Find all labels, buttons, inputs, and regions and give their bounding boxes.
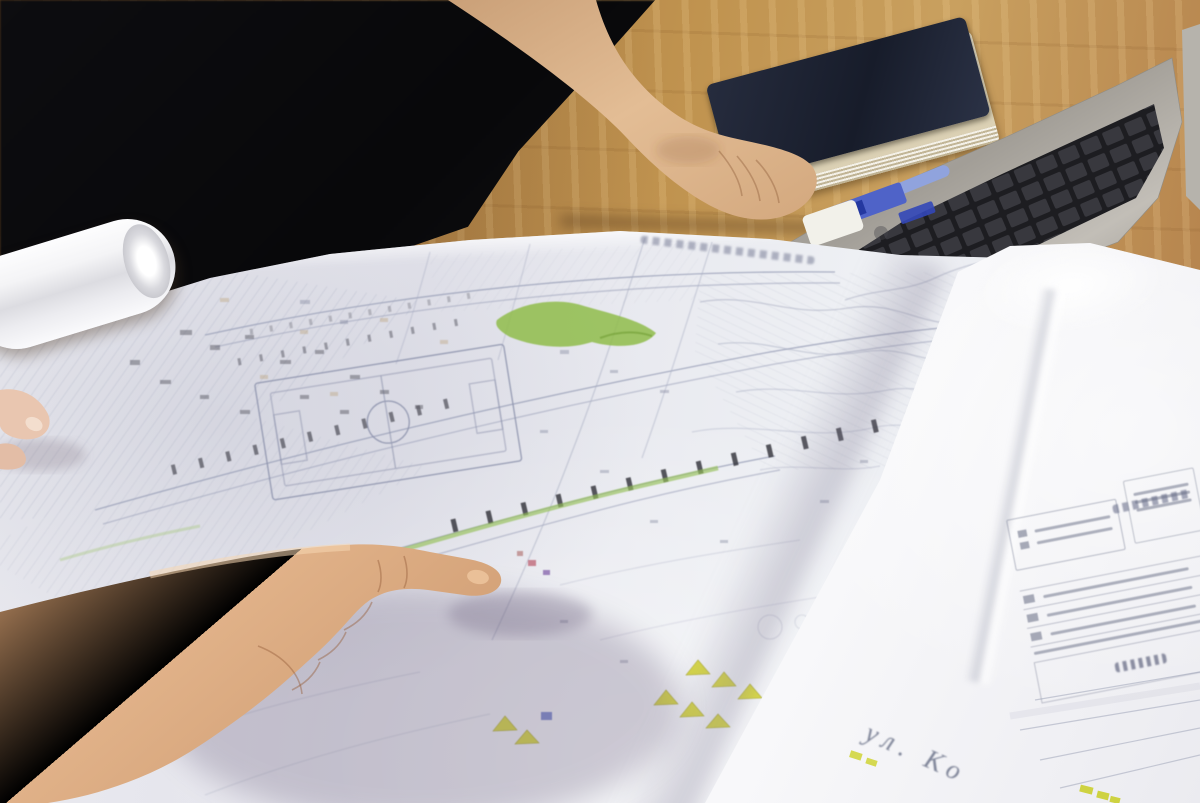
arm-shadow-small <box>448 592 592 636</box>
photo-scene: ул. Ко <box>0 0 1200 803</box>
pointing-hand <box>0 0 1200 803</box>
